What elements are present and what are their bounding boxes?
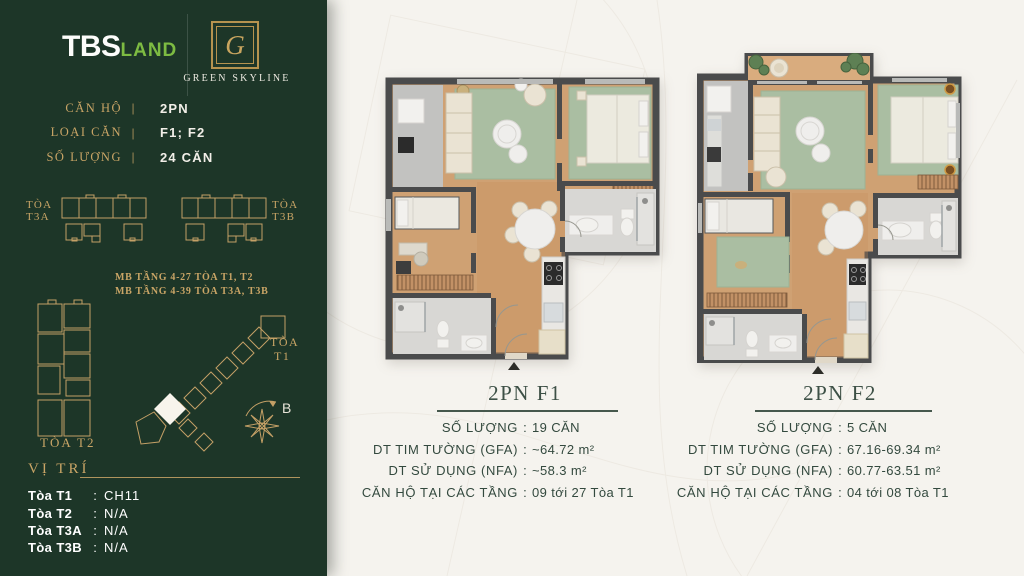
info-row: SỐ LƯỢNG | 24 CĂN <box>30 150 302 165</box>
f2-balcony <box>748 53 870 85</box>
sidebar: TBS LAND G GREEN SKYLINE CĂN HỘ | 2PN LO… <box>0 0 327 576</box>
land-logo-text: LAND <box>121 40 178 62</box>
unit-details-f1: SỐ LƯỢNG : 19 CĂN DT TIM TƯỜNG (GFA) : ~… <box>357 417 693 503</box>
detail-row: CĂN HỘ TẠI CÁC TẦNG : 09 tới 27 Tòa T1 <box>357 485 693 500</box>
f2-master-bathroom <box>878 198 958 255</box>
f1-living-room <box>446 79 555 179</box>
tower-t1-diagram <box>136 316 285 451</box>
detail-colon: : <box>518 420 532 435</box>
detail-label: DT SỬ DỤNG (NFA) <box>672 463 833 478</box>
info-row: CĂN HỘ | 2PN <box>30 101 302 116</box>
detail-colon: : <box>833 485 847 500</box>
detail-value: 09 tới 27 Tòa T1 <box>532 485 693 500</box>
detail-label: SỐ LƯỢNG <box>357 420 518 435</box>
f2-master-bedroom <box>878 84 958 189</box>
vi-tri-colon: : <box>90 488 100 503</box>
detail-row: CĂN HỘ TẠI CÁC TẦNG : 04 tới 08 Tòa T1 <box>672 485 1008 500</box>
unit-info-table: CĂN HỘ | 2PN LOẠI CĂN | F1; F2 SỐ LƯỢNG … <box>30 96 302 170</box>
f2-kitchen <box>844 259 868 358</box>
f1-master-bathroom <box>565 189 656 252</box>
tower-t3b-diagram <box>180 192 268 244</box>
detail-colon: : <box>518 485 532 500</box>
green-skyline-monogram-icon: G <box>211 21 259 69</box>
detail-value: 5 CĂN <box>847 420 1008 435</box>
toa-t3b-label: TÒA T3B <box>272 199 298 223</box>
detail-colon: : <box>518 463 532 478</box>
compass-rose-icon <box>245 401 279 443</box>
vi-tri-value: N/A <box>100 506 140 521</box>
detail-colon: : <box>833 463 847 478</box>
detail-value: ~58.3 m² <box>532 463 693 478</box>
detail-label: DT SỬ DỤNG (NFA) <box>357 463 518 478</box>
detail-row: SỐ LƯỢNG : 5 CĂN <box>672 420 1008 435</box>
f2-kitchenette <box>704 81 748 191</box>
info-label: CĂN HỘ <box>30 101 122 116</box>
vi-tri-colon: : <box>90 523 100 538</box>
info-separator: | <box>122 150 144 164</box>
unit-details-f2: SỐ LƯỢNG : 5 CĂN DT TIM TƯỜNG (GFA) : 67… <box>672 417 1008 503</box>
floor-note: MB TẦNG 4-27 TÒA T1, T2 <box>115 271 268 285</box>
f1-second-bathroom <box>393 298 491 354</box>
info-value: F1; F2 <box>144 125 302 140</box>
tbs-land-logo: TBS LAND <box>62 30 177 64</box>
toa-t1-label-line2: T1 <box>274 349 290 363</box>
detail-row: DT TIM TƯỜNG (GFA) : 67.16-69.34 m² <box>672 442 1008 457</box>
entrance-arrow-f2-icon <box>812 366 824 374</box>
detail-label: CĂN HỘ TẠI CÁC TẦNG <box>672 485 833 500</box>
info-value: 2PN <box>144 101 302 116</box>
vi-tri-rule <box>80 477 300 478</box>
highlighted-unit-marker <box>154 393 186 425</box>
detail-value: 19 CĂN <box>532 420 693 435</box>
info-separator: | <box>122 101 144 115</box>
vi-tri-table: Tòa T1 : CH11 Tòa T2 : N/A Tòa T3A : N/A… <box>28 487 140 557</box>
detail-value: 67.16-69.34 m² <box>847 442 1008 457</box>
floorplan-f1-image <box>385 77 660 360</box>
vi-tri-value: CH11 <box>100 488 140 503</box>
unit-title-f1: 2PN F1 <box>370 381 680 406</box>
detail-label: DT TIM TƯỜNG (GFA) <box>357 442 518 457</box>
site-key-plan: TÒA T2 TÒA T1 B <box>20 296 310 456</box>
tower-t3a-diagram <box>60 192 148 244</box>
unit-title-underline-f2 <box>755 410 932 412</box>
detail-value: ~64.72 m² <box>532 442 693 457</box>
vi-tri-row: Tòa T3B : N/A <box>28 540 140 555</box>
f1-entry-area <box>393 85 443 189</box>
toa-t3a-label: TÒA T3A <box>26 199 52 223</box>
project-name: GREEN SKYLINE <box>182 73 292 84</box>
detail-label: CĂN HỘ TẠI CÁC TẦNG <box>357 485 518 500</box>
f2-living-room <box>754 91 865 189</box>
info-label: LOẠI CĂN <box>30 125 122 140</box>
detail-row: DT SỬ DỤNG (NFA) : 60.77-63.51 m² <box>672 463 1008 478</box>
vi-tri-value: N/A <box>100 540 140 555</box>
detail-colon: : <box>833 420 847 435</box>
toa-t1-label-line1: TÒA <box>270 335 299 349</box>
vi-tri-label: Tòa T3B <box>28 540 90 555</box>
vi-tri-row: Tòa T3A : N/A <box>28 523 140 538</box>
tower-t2-diagram <box>38 300 90 436</box>
info-separator: | <box>122 126 144 140</box>
tbs-logo-text: TBS <box>62 30 121 64</box>
monogram-letter: G <box>225 30 245 61</box>
main-content: 2PN F1 SỐ LƯỢNG : 19 CĂN DT TIM TƯỜNG (G… <box>327 0 1024 576</box>
vi-tri-row: Tòa T2 : N/A <box>28 506 140 521</box>
info-label: SỐ LƯỢNG <box>30 150 122 165</box>
f1-kitchen <box>539 257 565 354</box>
floor-range-notes: MB TẦNG 4-27 TÒA T1, T2 MB TẦNG 4-39 TÒA… <box>115 271 268 298</box>
toa-t2-label: TÒA T2 <box>40 435 95 450</box>
vi-tri-row: Tòa T1 : CH11 <box>28 488 140 503</box>
detail-row: DT SỬ DỤNG (NFA) : ~58.3 m² <box>357 463 693 478</box>
detail-row: SỐ LƯỢNG : 19 CĂN <box>357 420 693 435</box>
info-row: LOẠI CĂN | F1; F2 <box>30 125 302 140</box>
vi-tri-label: Tòa T2 <box>28 506 90 521</box>
detail-label: DT TIM TƯỜNG (GFA) <box>672 442 833 457</box>
compass-direction-label: B <box>282 400 291 416</box>
info-value: 24 CĂN <box>144 150 302 165</box>
vi-tri-label: Tòa T1 <box>28 488 90 503</box>
detail-value: 60.77-63.51 m² <box>847 463 1008 478</box>
unit-title-underline-f1 <box>437 410 618 412</box>
vi-tri-heading: VỊ TRÍ <box>28 461 89 478</box>
detail-value: 04 tới 08 Tòa T1 <box>847 485 1008 500</box>
vi-tri-colon: : <box>90 540 100 555</box>
vi-tri-colon: : <box>90 506 100 521</box>
detail-colon: : <box>518 442 532 457</box>
detail-colon: : <box>833 442 847 457</box>
detail-label: SỐ LƯỢNG <box>672 420 833 435</box>
vi-tri-label: Tòa T3A <box>28 523 90 538</box>
detail-row: DT TIM TƯỜNG (GFA) : ~64.72 m² <box>357 442 693 457</box>
vi-tri-value: N/A <box>100 523 140 538</box>
floorplan-f2-image <box>697 53 963 363</box>
entrance-arrow-f1-icon <box>508 362 520 370</box>
unit-title-f2: 2PN F2 <box>685 381 995 406</box>
f2-second-bathroom <box>704 314 802 360</box>
